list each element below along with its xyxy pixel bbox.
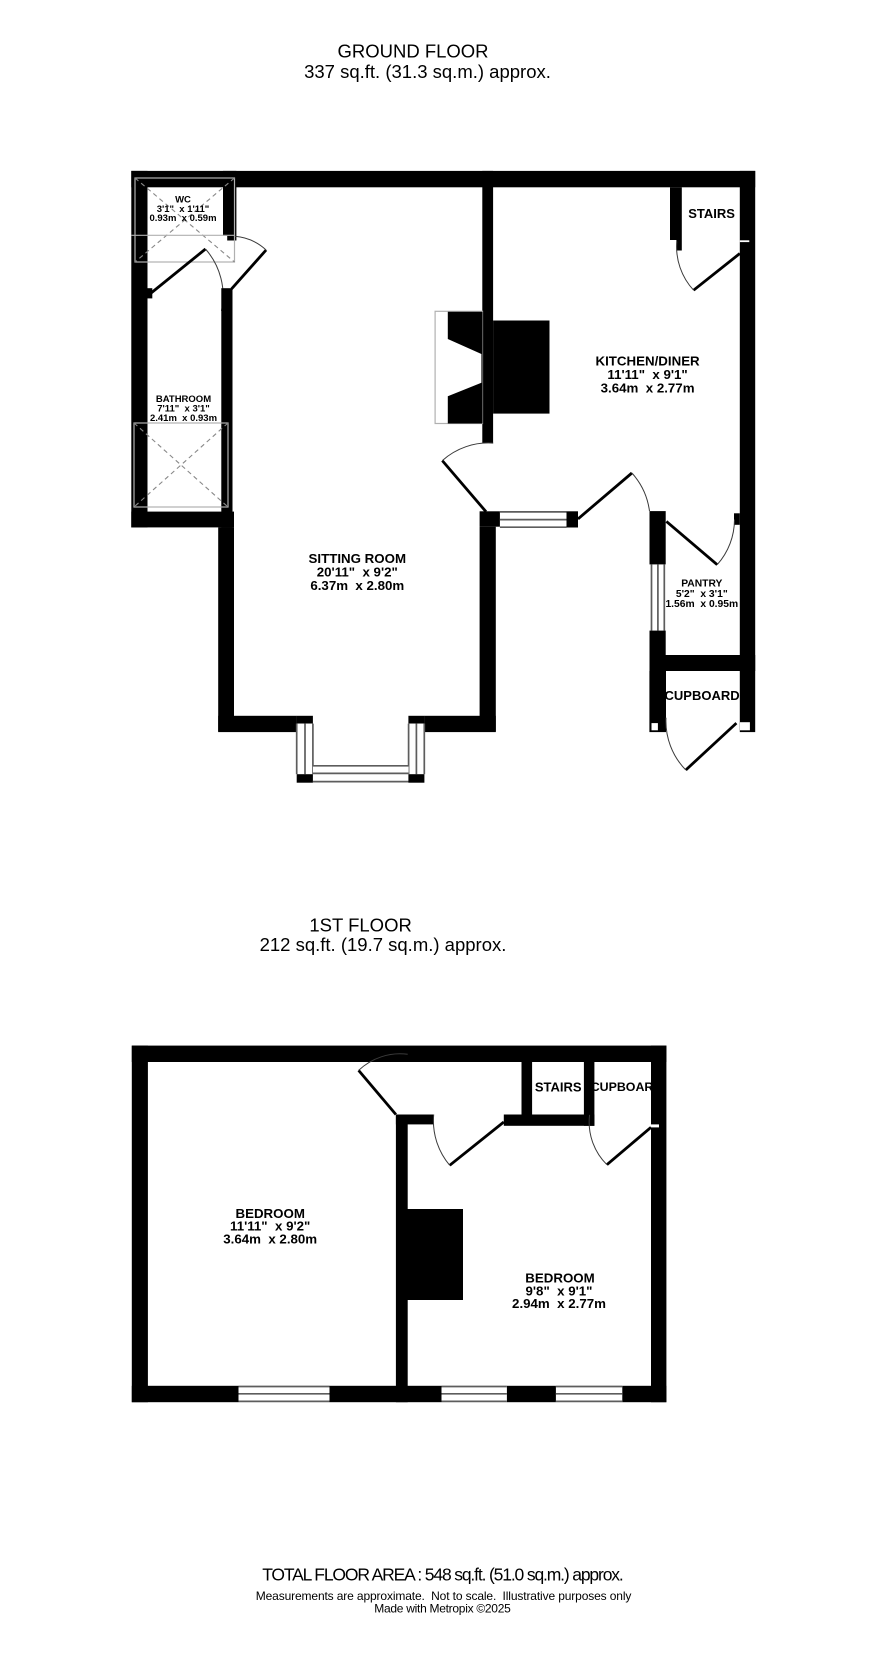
svg-text:2.41m x 0.93m: 2.41m x 0.93m [150, 413, 217, 424]
svg-text:PANTRY: PANTRY [681, 578, 722, 589]
svg-text:6.37m x 2.80m: 6.37m x 2.80m [310, 578, 404, 593]
svg-text:337 sq.ft. (31.3 sq.m.) approx: 337 sq.ft. (31.3 sq.m.) approx. [304, 61, 551, 82]
svg-text:0.93m x 0.59m: 0.93m x 0.59m [149, 213, 216, 224]
svg-text:1ST FLOOR: 1ST FLOOR [309, 914, 411, 935]
svg-text:CUPBOARD: CUPBOARD [665, 688, 740, 703]
svg-text:STAIRS: STAIRS [535, 1079, 582, 1094]
svg-text:2.94m x 2.77m: 2.94m x 2.77m [512, 1296, 606, 1311]
svg-text:TOTAL FLOOR AREA : 548 sq.ft.: TOTAL FLOOR AREA : 548 sq.ft. (51.0 sq.m… [262, 1564, 623, 1584]
svg-text:GROUND FLOOR: GROUND FLOOR [337, 41, 488, 62]
svg-text:CUPBOARD: CUPBOARD [591, 1080, 663, 1094]
svg-text:STAIRS: STAIRS [688, 206, 735, 221]
svg-text:1.56m x 0.95m: 1.56m x 0.95m [665, 599, 738, 610]
svg-text:212 sq.ft. (19.7 sq.m.) approx: 212 sq.ft. (19.7 sq.m.) approx. [260, 934, 507, 955]
svg-text:Made with Metropix ©2025: Made with Metropix ©2025 [374, 1602, 511, 1616]
svg-text:3.64m x 2.80m: 3.64m x 2.80m [223, 1232, 317, 1247]
svg-text:3.64m x 2.77m: 3.64m x 2.77m [601, 381, 695, 396]
